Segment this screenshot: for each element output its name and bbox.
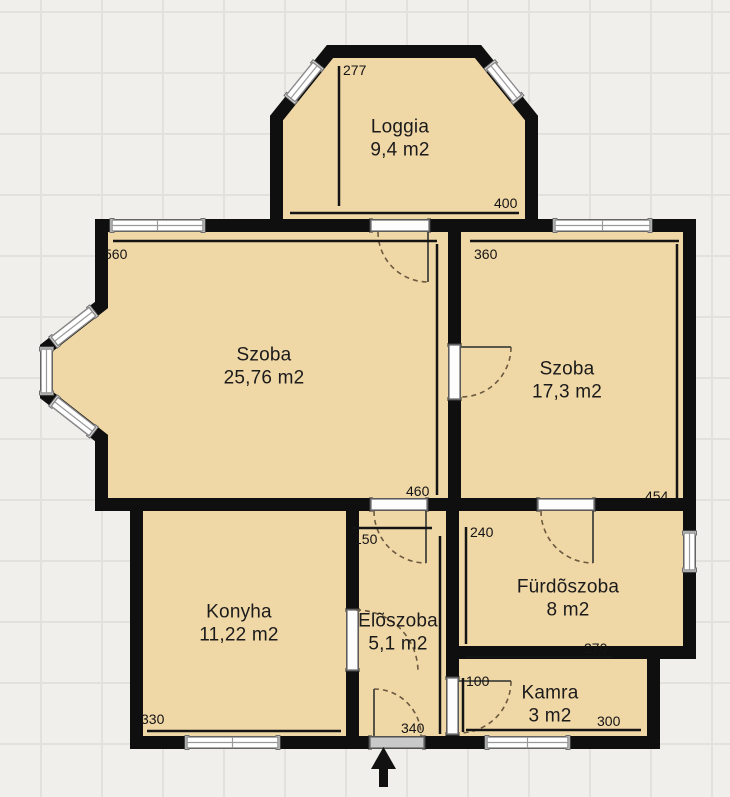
dim-label-szoba-large-width: 560 xyxy=(104,246,127,262)
room-label-loggia: Loggia 9,4 m2 xyxy=(370,117,429,162)
window-icon xyxy=(185,736,280,750)
room-name: Kamra xyxy=(522,683,579,706)
room-label-szoba-large: Szoba 25,76 m2 xyxy=(224,345,305,390)
dim-label-kamra-depth: 100 xyxy=(466,673,489,689)
entry-arrow-icon xyxy=(371,747,396,787)
window-icon xyxy=(40,347,54,395)
door-icon xyxy=(369,498,429,512)
room-area: 5,1 m2 xyxy=(358,633,438,656)
dim-label-furdoszoba-depth: 240 xyxy=(470,524,493,540)
room-label-kamra: Kamra 3 m2 xyxy=(522,683,579,728)
dim-label-konyha-width: 330 xyxy=(141,711,164,727)
room-name: Loggia xyxy=(370,117,429,140)
dim-label-loggia-depth: 277 xyxy=(343,62,366,78)
room-area: 25,76 m2 xyxy=(224,367,305,390)
door-icon xyxy=(369,219,431,233)
window-icon xyxy=(485,736,570,750)
door-icon xyxy=(448,343,462,401)
floorplan-drawing xyxy=(0,0,730,797)
room-name: Szoba xyxy=(224,345,305,368)
room-area: 3 m2 xyxy=(522,705,579,728)
window-icon xyxy=(683,531,697,572)
room-name: Szoba xyxy=(532,359,602,382)
room-label-konyha: Konyha 11,22 m2 xyxy=(199,602,278,647)
dim-label-szoba-large-depth: 460 xyxy=(406,483,429,499)
dim-label-eloszoba-width: 150 xyxy=(354,531,377,547)
entry-door-icon xyxy=(368,736,426,750)
floorplan-canvas: Loggia 9,4 m2 Szoba 25,76 m2 Szoba 17,3 … xyxy=(0,0,730,797)
room-label-eloszoba: Elõszoba 5,1 m2 xyxy=(358,611,438,656)
dim-label-szoba-small-depth: 454 xyxy=(645,488,668,504)
window-icon xyxy=(110,219,205,233)
room-area: 8 m2 xyxy=(517,599,619,622)
dim-label-loggia-width: 400 xyxy=(494,195,517,211)
dim-label-kamra-width: 300 xyxy=(597,713,620,729)
dim-label-szoba-small-width: 360 xyxy=(474,246,497,262)
room-area: 17,3 m2 xyxy=(532,381,602,404)
door-icon xyxy=(536,498,596,512)
room-area: 11,22 m2 xyxy=(199,624,278,647)
dim-label-eloszoba-depth: 340 xyxy=(401,720,424,736)
room-area: 9,4 m2 xyxy=(370,139,429,162)
door-icon xyxy=(446,676,460,736)
window-icon xyxy=(553,219,652,233)
room-name: Fürdõszoba xyxy=(517,577,619,600)
dim-label-furdoszoba-width: 270 xyxy=(584,640,607,656)
room-name: Elõszoba xyxy=(358,611,438,634)
room-label-szoba-small: Szoba 17,3 m2 xyxy=(532,359,602,404)
room-label-furdoszoba: Fürdõszoba 8 m2 xyxy=(517,577,619,622)
room-name: Konyha xyxy=(199,602,278,625)
